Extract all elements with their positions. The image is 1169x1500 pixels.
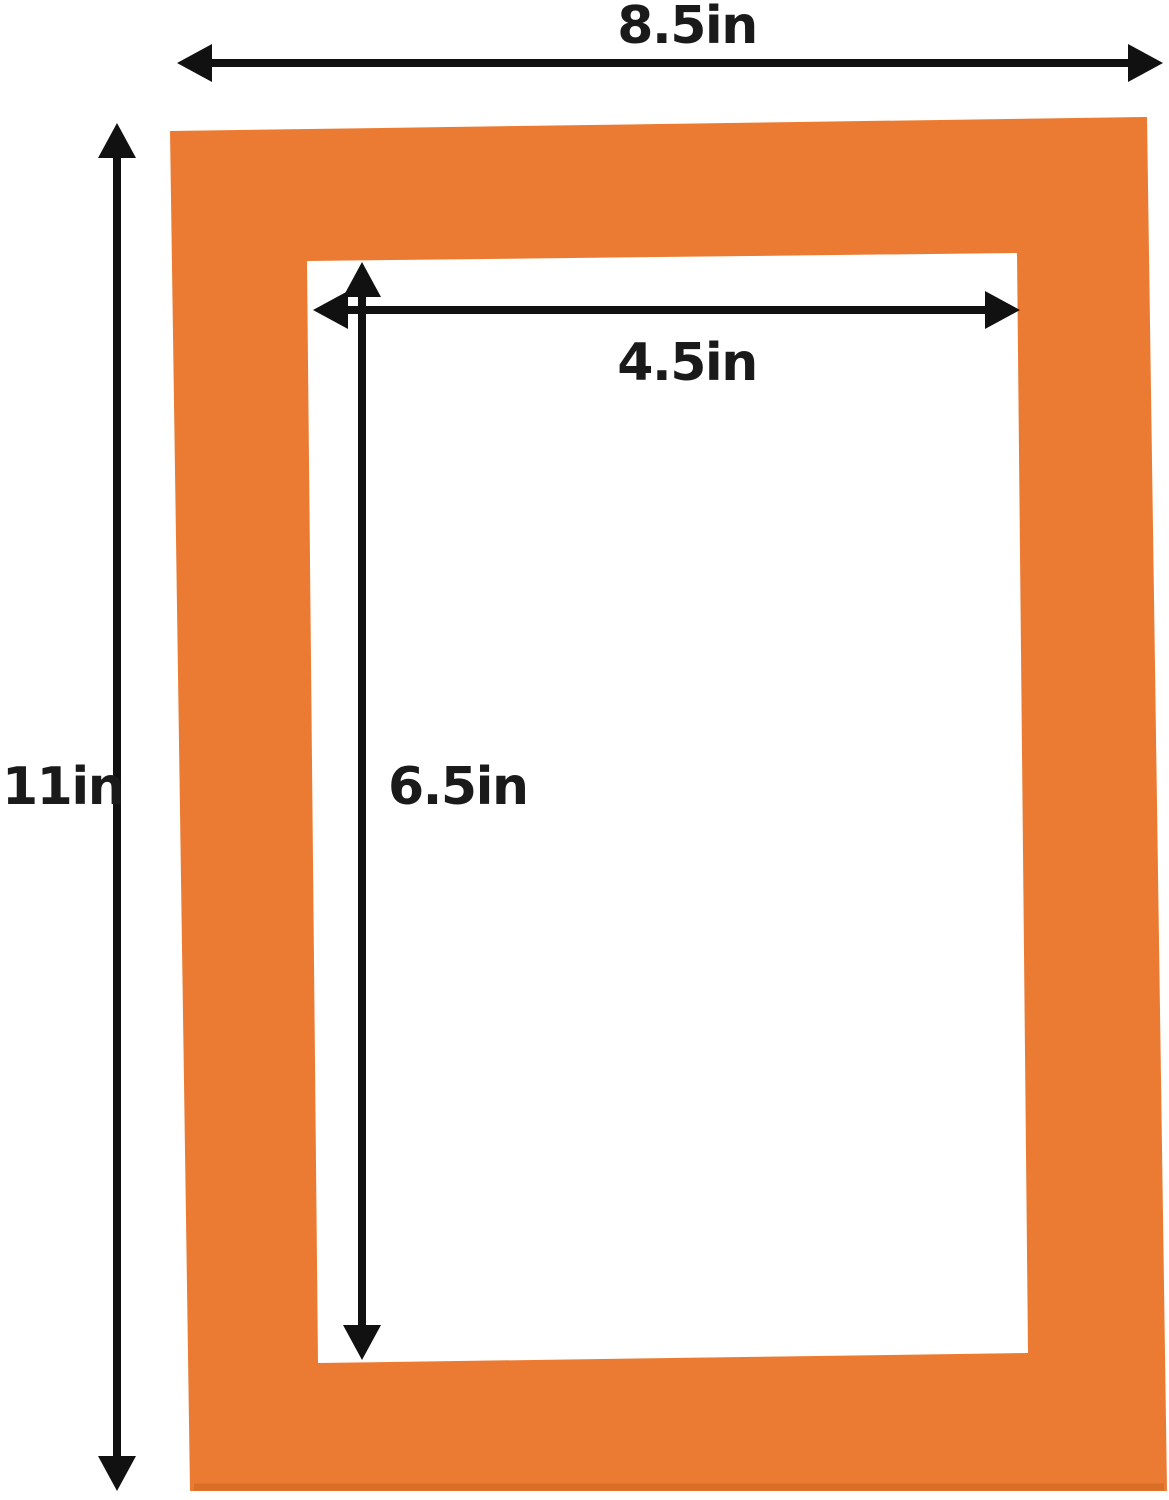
outer-height-label: 11in [2, 761, 132, 813]
arrowhead-up-icon [98, 123, 136, 158]
inner-width-arrow [313, 291, 1020, 329]
diagram-canvas [0, 0, 1169, 1500]
arrowhead-right-icon [985, 291, 1020, 329]
outer-width-label: 8.5in [552, 0, 822, 52]
arrowhead-down-icon [343, 1325, 381, 1360]
dimension-diagram: 8.5in 11in 4.5in 6.5in [0, 0, 1169, 1500]
arrowhead-up-icon [343, 262, 381, 297]
arrowhead-down-icon [98, 1456, 136, 1491]
arrowhead-left-icon [177, 44, 212, 82]
inner-height-label: 6.5in [388, 761, 588, 813]
mat-board [170, 117, 1167, 1491]
inner-height-arrow [343, 262, 381, 1360]
arrowhead-left-icon [313, 291, 348, 329]
inner-width-label: 4.5in [552, 337, 822, 389]
arrowhead-right-icon [1128, 44, 1163, 82]
